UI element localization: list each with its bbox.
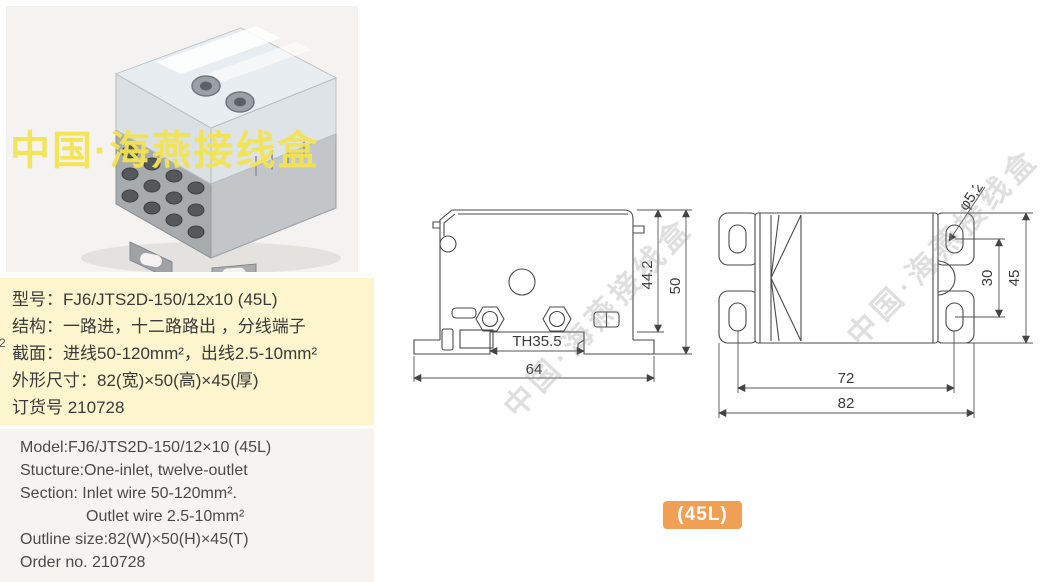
spec-outline-en: Outline size:82(W)×50(H)×45(T): [20, 528, 374, 551]
spec-section-inlet-en: Section: Inlet wire 50-120mm².: [20, 482, 374, 505]
dim-inner-height: 44.2: [639, 260, 656, 289]
spec-order-cn: 订货号 210728: [12, 394, 374, 421]
spec-section-cn: 截面：进线50-120mm²，出线2.5-10mm²: [12, 340, 374, 367]
spec-model-cn: 型号：FJ6/JTS2D-150/12x10 (45L): [12, 286, 374, 313]
top-view-outline: [719, 213, 974, 343]
dim-hole-diameter: φ5,2: [956, 185, 987, 214]
side-view-drawing: TH35.5 64 44.2 50: [402, 182, 702, 402]
side-view-dimension-lines: [414, 210, 692, 382]
dim-hole-spacing-vertical: 30: [979, 270, 996, 287]
spec-section-outlet-en: Outlet wire 2.5-10mm²: [20, 505, 374, 528]
dim-hole-spacing-horizontal: 72: [838, 370, 855, 387]
datasheet-page: 中国·海燕接线盒 型号：FJ6/JTS2D-150/12x10 (45L) 结构…: [0, 0, 1059, 582]
spec-structure-cn: 结构：一路进，十二路路出 ，分线端子: [12, 313, 374, 340]
dim-base-width: 64: [526, 361, 543, 378]
edge-superscript-artifact: 2: [0, 336, 6, 350]
dim-total-width: 82: [838, 395, 855, 412]
spec-box-english: Model:FJ6/JTS2D-150/12×10 (45L) Stucture…: [0, 429, 374, 582]
size-badge: (45L): [663, 501, 742, 529]
spec-model-en: Model:FJ6/JTS2D-150/12×10 (45L): [20, 436, 374, 459]
product-photo: 中国·海燕接线盒: [6, 6, 358, 272]
spec-outline-cn: 外形尺寸：82(宽)×50(高)×45(厚): [12, 367, 374, 394]
spec-order-en: Order no. 210728: [20, 551, 374, 574]
dim-total-height: 50: [667, 278, 684, 295]
dim-depth: 45: [1006, 270, 1023, 287]
spec-box-chinese: 型号：FJ6/JTS2D-150/12x10 (45L) 结构：一路进，十二路路…: [0, 278, 374, 425]
photo-watermark: 中国·海燕接线盒: [10, 118, 358, 176]
top-view-drawing: φ5,2 30 45 72 82: [703, 185, 1053, 435]
spec-structure-en: Stucture:One-inlet, twelve-outlet: [20, 459, 374, 482]
dim-rail-width: TH35.5: [512, 333, 561, 350]
